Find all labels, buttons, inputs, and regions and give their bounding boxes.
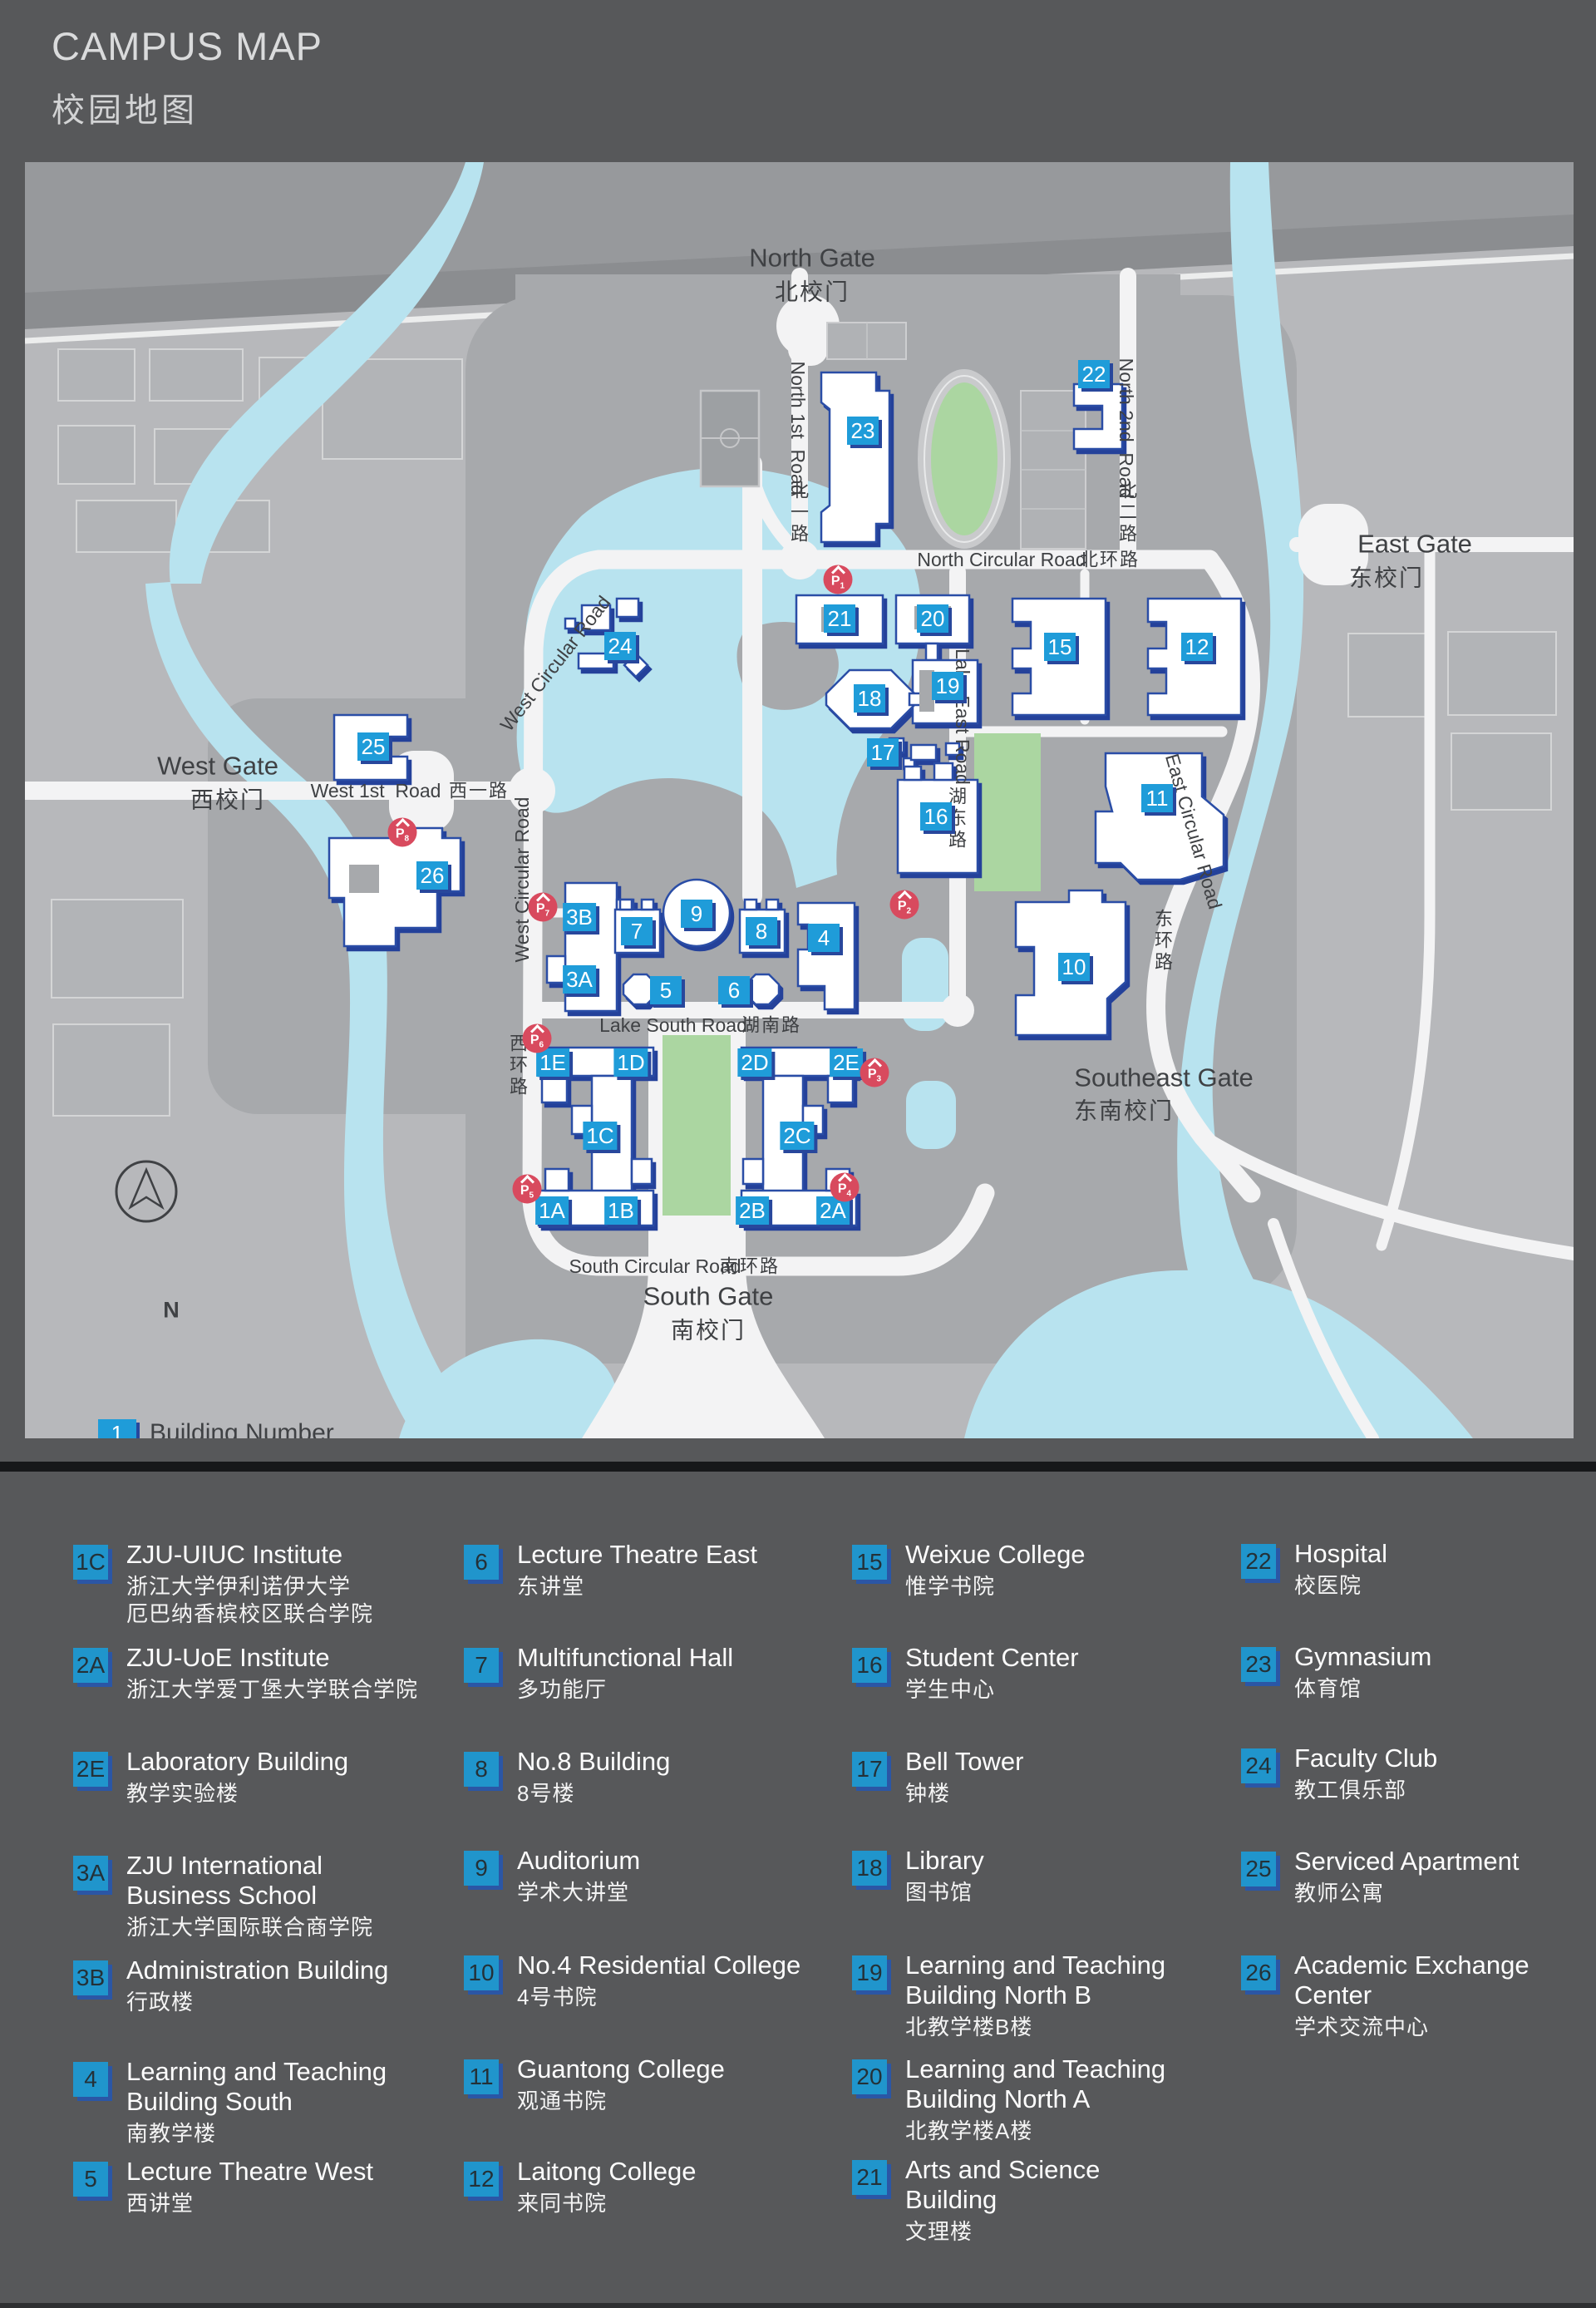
legend-entry-11: 11Guantong College观通书院 [464, 2059, 725, 2115]
legend-name-en: No.4 Residential College [517, 1950, 800, 1980]
legend-name-en: Faculty Club [1294, 1743, 1437, 1773]
legend-badge-10: 10 [464, 1955, 499, 1990]
building-badge-19: 19 [932, 672, 963, 700]
legend-badge-2E: 2E [73, 1752, 108, 1787]
legend-badge-1C: 1C [73, 1545, 108, 1580]
legend-name-en: Student Center [905, 1643, 1079, 1673]
legend-badge-17: 17 [852, 1752, 887, 1787]
parking-marker-P3: P3 [860, 1058, 889, 1087]
legend-entry-18: 18Library图书馆 [852, 1851, 984, 1906]
building-badge-20: 20 [917, 604, 948, 633]
building-legend: 1CZJU-UIUC Institute浙江大学伊利诺伊大学 厄巴纳香槟校区联合… [0, 1472, 1596, 2303]
building-badge-11: 11 [1141, 784, 1173, 812]
building-badge-1C: 1C [583, 1122, 617, 1150]
legend-badge-18: 18 [852, 1851, 887, 1886]
parking-marker-P6: P6 [523, 1024, 552, 1053]
legend-badge-19: 19 [852, 1955, 887, 1990]
legend-name-zh: 观通书院 [517, 2088, 725, 2115]
legend-name-zh: 钟楼 [905, 1780, 1023, 1807]
legend-badge-7: 7 [464, 1648, 499, 1683]
road-north-circular-en: North Circular Road [917, 550, 1086, 570]
legend-name-en: Arts and Science Building [905, 2155, 1100, 2215]
legend-name-zh: 8号楼 [517, 1780, 670, 1807]
legend-name-zh: 南教学楼 [126, 2120, 387, 2148]
road-west-1st-zh: 西一路 [449, 781, 509, 800]
legend-name-en: Lecture Theatre West [126, 2157, 373, 2187]
legend-name-zh: 惟学书院 [905, 1573, 1086, 1600]
legend-name-zh: 4号书院 [517, 1984, 800, 2011]
legend-name-en: Hospital [1294, 1539, 1387, 1569]
gate-south-zh: 南校门 [671, 1318, 746, 1342]
parking-marker-P5: P5 [513, 1175, 542, 1204]
legend-entry-17: 17Bell Tower钟楼 [852, 1752, 1023, 1807]
legend-name-zh: 教工俱乐部 [1294, 1777, 1437, 1804]
building-badge-2C: 2C [780, 1122, 814, 1150]
gate-south-en: South Gate [643, 1284, 774, 1311]
legend-entry-25: 25Serviced Apartment教师公寓 [1241, 1852, 1520, 1907]
building-badge-12: 12 [1181, 633, 1213, 661]
gate-southeast-en: Southeast Gate [1074, 1065, 1253, 1092]
building-badge-25: 25 [357, 732, 389, 761]
legend-entry-10: 10No.4 Residential College4号书院 [464, 1955, 800, 2011]
road-east-circular-zh: 东环路 [1153, 909, 1171, 974]
legend-badge-2A: 2A [73, 1648, 108, 1683]
page-title: CAMPUS MAP [52, 23, 323, 69]
legend-name-zh: 图书馆 [905, 1879, 984, 1906]
legend-entry-19: 19Learning and Teaching Building North B… [852, 1955, 1165, 2041]
legend-entry-23: 23Gymnasium体育馆 [1241, 1647, 1431, 1703]
legend-name-zh: 浙江大学国际联合商学院 [126, 1914, 373, 1941]
legend-badge-23: 23 [1241, 1647, 1276, 1682]
legend-name-zh: 东讲堂 [517, 1573, 757, 1600]
road-south-circular-en: South Circular Road [569, 1256, 741, 1276]
legend-entry-21: 21Arts and Science Building文理楼 [852, 2160, 1100, 2246]
legend-entry-3B: 3BAdministration Building行政楼 [73, 1960, 388, 2016]
legend-name-en: ZJU International Business School [126, 1851, 373, 1911]
road-lake-south-zh: 湖南路 [741, 1015, 801, 1034]
building-badge-1B: 1B [604, 1196, 638, 1225]
legend-entry-16: 16Student Center学生中心 [852, 1648, 1079, 1704]
legend-badge-21: 21 [852, 2160, 887, 2195]
legend-badge-3B: 3B [73, 1960, 108, 1995]
gate-east-zh: 东校门 [1349, 565, 1424, 589]
legend-entry-12: 12Laitong College来同书院 [464, 2162, 696, 2217]
legend-entry-22: 22Hospital校医院 [1241, 1544, 1387, 1600]
legend-name-zh: 浙江大学爱丁堡大学联合学院 [126, 1676, 418, 1704]
legend-name-zh: 来同书院 [517, 2190, 696, 2217]
legend-badge-26: 26 [1241, 1955, 1276, 1990]
legend-name-zh: 多功能厅 [517, 1676, 733, 1704]
gate-southeast-zh: 东南校门 [1074, 1098, 1174, 1122]
gate-north-zh: 北校门 [775, 279, 850, 303]
legend-name-zh: 北教学楼A楼 [905, 2118, 1165, 2145]
building-badge-1A: 1A [535, 1196, 569, 1225]
legend-name-en: Learning and Teaching Building South [126, 2057, 387, 2117]
road-north-1st-en: North 1st Road [788, 361, 808, 495]
building-badge-9: 9 [681, 900, 712, 928]
parking-marker-P4: P4 [830, 1173, 860, 1202]
legend-name-zh: 文理楼 [905, 2218, 1100, 2246]
separator-band [0, 1462, 1596, 1472]
legend-name-en: Laitong College [517, 2157, 696, 2187]
legend-entry-4: 4Learning and Teaching Building South南教学… [73, 2062, 387, 2148]
building-badge-1E: 1E [536, 1048, 569, 1077]
legend-entry-24: 24Faculty Club教工俱乐部 [1241, 1748, 1437, 1804]
legend-name-zh: 行政楼 [126, 1989, 388, 2016]
legend-name-en: Lecture Theatre East [517, 1540, 757, 1570]
legend-name-en: ZJU-UIUC Institute [126, 1540, 373, 1570]
legend-badge-3A: 3A [73, 1856, 108, 1891]
building-badge-26: 26 [416, 861, 448, 890]
legend-badge-4: 4 [73, 2062, 108, 2097]
building-badge-8: 8 [746, 917, 777, 945]
building-badge-16: 16 [920, 802, 952, 831]
gate-east-en: East Gate [1357, 531, 1472, 559]
building-badge-24: 24 [604, 632, 636, 660]
legend-name-zh: 学术大讲堂 [517, 1879, 640, 1906]
legend-badge-11: 11 [464, 2059, 499, 2094]
legend-badge-9: 9 [464, 1851, 499, 1886]
building-badge-15: 15 [1044, 633, 1076, 661]
legend-entry-1C: 1CZJU-UIUC Institute浙江大学伊利诺伊大学 厄巴纳香槟校区联合… [73, 1545, 373, 1628]
road-north-2nd-zh: 北二路 [1117, 481, 1135, 545]
legend-name-zh: 西讲堂 [126, 2190, 373, 2217]
legend-name-en: Laboratory Building [126, 1747, 348, 1777]
legend-entry-2A: 2AZJU-UoE Institute浙江大学爱丁堡大学联合学院 [73, 1648, 418, 1704]
legend-name-en: Bell Tower [905, 1747, 1023, 1777]
legend-name-zh: 教学实验楼 [126, 1780, 348, 1807]
building-badge-22: 22 [1078, 360, 1110, 388]
legend-badge-25: 25 [1241, 1852, 1276, 1886]
road-south-circular-zh: 南环路 [720, 1256, 780, 1275]
parking-marker-P8: P8 [388, 818, 417, 847]
legend-badge-22: 22 [1241, 1544, 1276, 1579]
building-badge-7: 7 [621, 917, 653, 945]
legend-entry-7: 7Multifunctional Hall多功能厅 [464, 1648, 733, 1704]
legend-badge-5: 5 [73, 2162, 108, 2197]
building-badge-17: 17 [867, 738, 899, 767]
legend-name-zh: 学生中心 [905, 1676, 1079, 1704]
legend-name-zh: 校医院 [1294, 1572, 1387, 1600]
legend-name-en: Auditorium [517, 1846, 640, 1876]
road-lake-east-en: Lake East Road [953, 649, 973, 785]
road-lake-south-en: Lake South Road [599, 1015, 747, 1035]
building-badge-6: 6 [718, 976, 750, 1004]
building-badge-10: 10 [1058, 953, 1090, 981]
compass-north-label: N [163, 1298, 180, 1324]
road-west-circular-side-en: West Circular Road [512, 797, 532, 963]
legend-name-zh: 体育馆 [1294, 1675, 1431, 1703]
legend-name-en: Gymnasium [1294, 1642, 1431, 1672]
legend-name-zh: 北教学楼B楼 [905, 2014, 1165, 2041]
legend-entry-2E: 2ELaboratory Building教学实验楼 [73, 1752, 348, 1807]
gate-west-en: West Gate [157, 753, 278, 781]
legend-badge-6: 6 [464, 1545, 499, 1580]
building-badge-21: 21 [824, 604, 855, 633]
page-title-chinese: 校园地图 [52, 83, 198, 131]
building-badge-2B: 2B [736, 1196, 769, 1225]
legend-badge-12: 12 [464, 2162, 499, 2197]
legend-name-zh: 浙江大学伊利诺伊大学 厄巴纳香槟校区联合学院 [126, 1573, 373, 1628]
legend-name-en: Weixue College [905, 1540, 1086, 1570]
building-badge-1D: 1D [613, 1048, 648, 1077]
gate-north-en: North Gate [749, 245, 875, 273]
legend-entry-15: 15Weixue College惟学书院 [852, 1545, 1086, 1600]
building-badge-2E: 2E [830, 1048, 863, 1077]
legend-entry-3A: 3AZJU International Business School浙江大学国… [73, 1856, 373, 1941]
building-badge-3A: 3A [563, 965, 596, 994]
parking-marker-P7: P7 [529, 893, 558, 922]
road-north-circular-zh: 北环路 [1080, 550, 1140, 569]
building-badge-3B: 3B [563, 903, 596, 931]
key-building-label-en: Building Number [150, 1419, 334, 1438]
legend-name-en: Guantong College [517, 2054, 725, 2084]
legend-name-en: Learning and Teaching Building North B [905, 1950, 1165, 2010]
legend-badge-16: 16 [852, 1648, 887, 1683]
legend-name-en: Administration Building [126, 1955, 388, 1985]
legend-entry-8: 8No.8 Building8号楼 [464, 1752, 670, 1807]
building-badge-2D: 2D [737, 1048, 771, 1077]
legend-badge-20: 20 [852, 2059, 887, 2094]
legend-badge-8: 8 [464, 1752, 499, 1787]
legend-entry-9: 9Auditorium学术大讲堂 [464, 1851, 640, 1906]
legend-name-en: Serviced Apartment [1294, 1847, 1520, 1876]
key-building-badge: 1 [98, 1419, 136, 1438]
parking-marker-P1: P1 [824, 565, 853, 594]
building-badge-18: 18 [854, 684, 885, 713]
road-west-1st-en: West 1st Road [311, 781, 441, 801]
legend-name-en: Multifunctional Hall [517, 1643, 733, 1673]
road-north-1st-zh: 北一路 [789, 481, 807, 545]
legend-entry-6: 6Lecture Theatre East东讲堂 [464, 1545, 757, 1600]
legend-entry-20: 20Learning and Teaching Building North A… [852, 2059, 1165, 2145]
campus-map: 1 Building Number 建筑编号 P Underground Par… [25, 162, 1574, 1438]
legend-badge-24: 24 [1241, 1748, 1276, 1783]
gate-west-zh: 西校门 [190, 787, 265, 811]
legend-name-en: Academic Exchange Center [1294, 1950, 1529, 2010]
parking-marker-P2: P2 [890, 890, 919, 920]
legend-name-en: Learning and Teaching Building North A [905, 2054, 1165, 2114]
legend-name-en: Library [905, 1846, 984, 1876]
road-north-2nd-en: North 2nd Road [1116, 358, 1136, 499]
footer-line [0, 2303, 1596, 2308]
legend-name-en: No.8 Building [517, 1747, 670, 1777]
legend-entry-5: 5Lecture Theatre West西讲堂 [73, 2162, 373, 2217]
legend-entry-26: 26Academic Exchange Center学术交流中心 [1241, 1955, 1529, 2041]
building-badge-5: 5 [650, 976, 682, 1004]
building-badge-23: 23 [847, 417, 879, 445]
legend-name-en: ZJU-UoE Institute [126, 1643, 418, 1673]
building-badge-4: 4 [808, 924, 840, 952]
legend-badge-15: 15 [852, 1545, 887, 1580]
legend-name-zh: 学术交流中心 [1294, 2014, 1529, 2041]
legend-name-zh: 教师公寓 [1294, 1880, 1520, 1907]
